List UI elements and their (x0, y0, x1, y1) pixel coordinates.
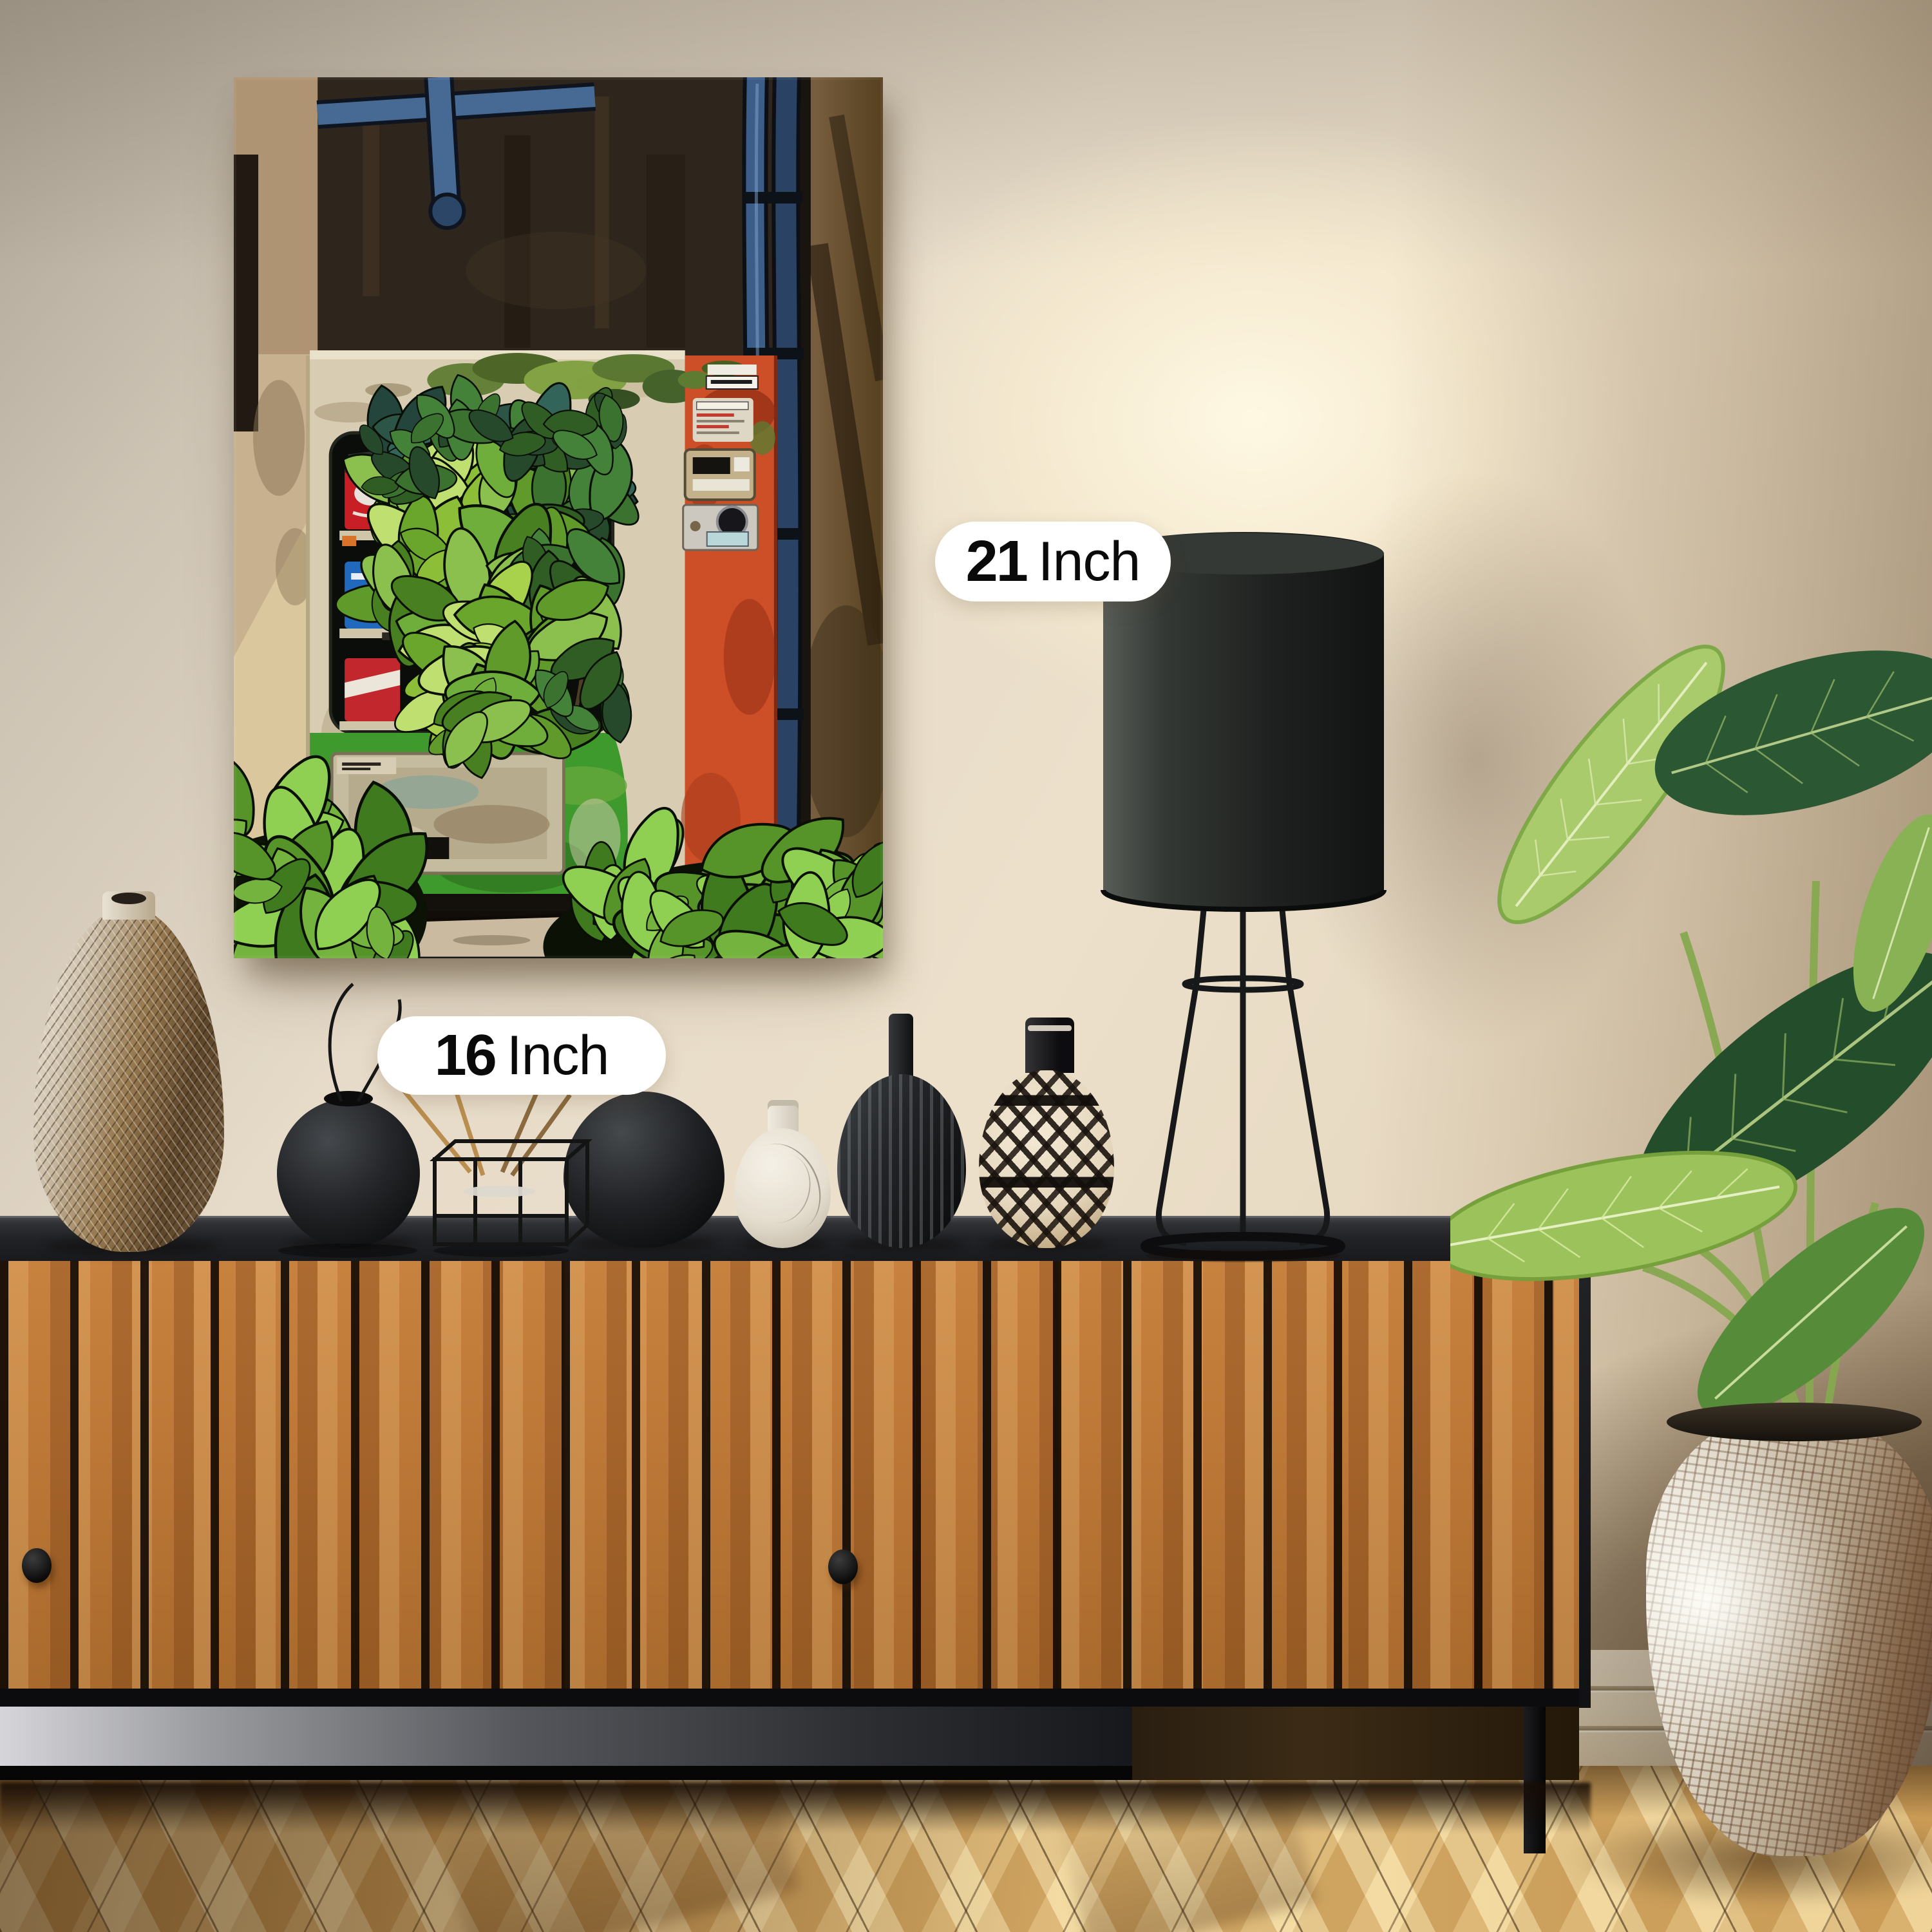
room-scene: 21 Inch 16 Inch (0, 0, 1932, 1932)
width-value: 16 (435, 1023, 495, 1089)
sideboard (0, 1216, 1591, 1860)
sideboard-bottom-edge (0, 1689, 1579, 1707)
fluted-vase-neck (889, 1014, 913, 1078)
sideboard-slat-doors[interactable] (0, 1261, 1579, 1689)
mosaic-floor-planter (1646, 1412, 1932, 1856)
cabinet-floor-shadow (0, 1783, 1591, 1833)
height-dimension-label: 21 Inch (935, 522, 1171, 601)
height-unit: Inch (1038, 530, 1141, 594)
incense-basket-and-wires (245, 960, 605, 1294)
sideboard-plinth-lip (0, 1766, 1132, 1780)
under-cabinet-shadow (1132, 1707, 1579, 1780)
width-dimension-label: 16 Inch (377, 1016, 666, 1095)
width-unit: Inch (507, 1024, 609, 1088)
black-drum-table-lamp (1088, 514, 1397, 1274)
white-vase-neck (768, 1100, 799, 1132)
door-knob-left[interactable] (22, 1548, 52, 1583)
door-knob-right[interactable] (828, 1549, 858, 1584)
height-value: 21 (966, 529, 1027, 595)
plant-leaves (1450, 572, 1932, 1538)
lamp-wire-frame (1159, 890, 1327, 1243)
vending-machine-illustration (234, 77, 883, 958)
tropical-plant (1450, 572, 1932, 1538)
patterned-vase-neck (1025, 1018, 1074, 1073)
wall-art-canvas (234, 77, 883, 958)
